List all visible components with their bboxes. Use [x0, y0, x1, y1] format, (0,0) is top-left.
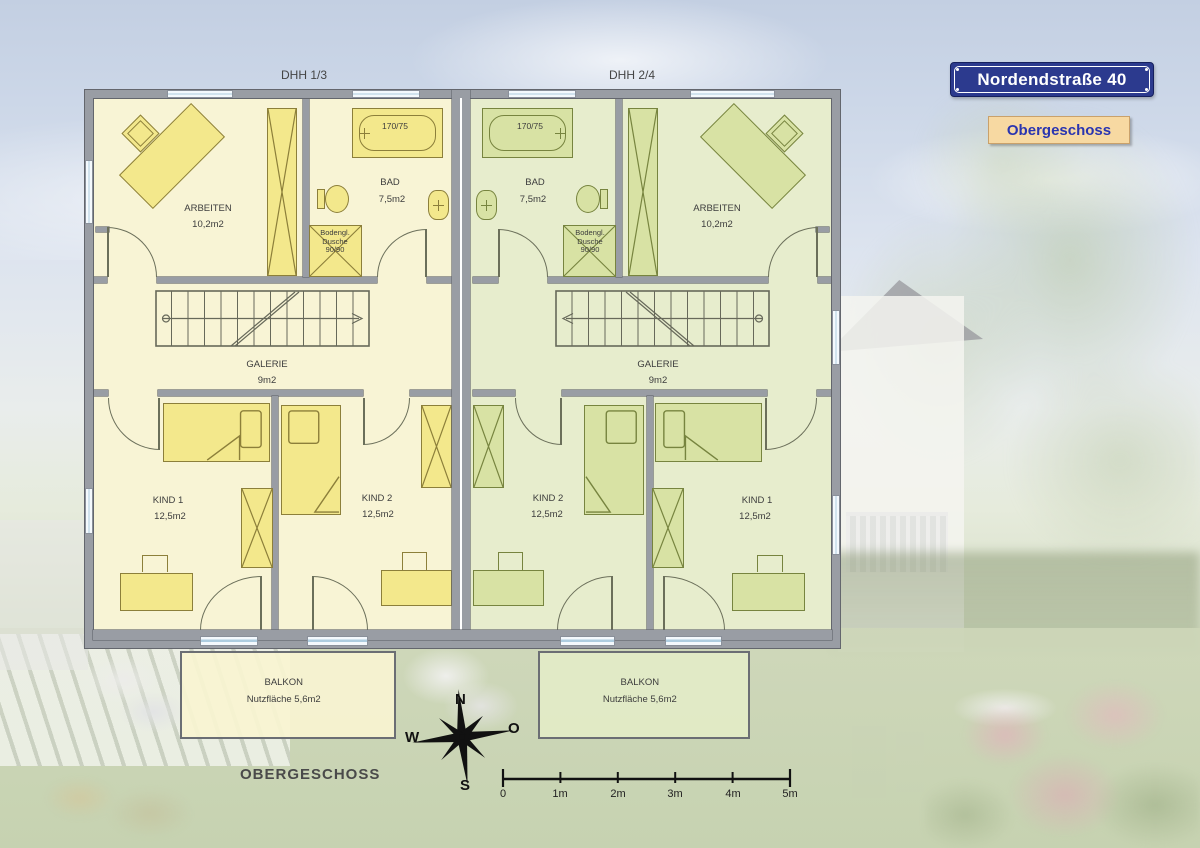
balcony-area-label: Nutzfläche 5,6m2 — [603, 694, 677, 705]
window — [690, 90, 775, 98]
balcony-right: BALKON Nutzfläche 5,6m2 — [538, 651, 750, 739]
balcony-label: BALKON — [621, 677, 660, 688]
street-sign-text: Nordendstraße 40 — [954, 66, 1150, 93]
party-wall — [452, 90, 470, 640]
background-house-balcony-rail — [846, 512, 948, 572]
balcony-area-label: Nutzfläche 5,6m2 — [247, 694, 321, 705]
compass-o-label: O — [508, 720, 520, 737]
screw-icon — [956, 88, 959, 91]
scale-tick-label: 5m — [782, 788, 797, 800]
window — [508, 90, 576, 98]
window — [832, 495, 840, 555]
screenshot-root: 170/75 Bodengl. Dusche 90/90 — [0, 0, 1200, 848]
compass-w-label: W — [405, 729, 419, 746]
scale-tick-label: 1m — [552, 788, 567, 800]
street-sign: Nordendstraße 40 — [950, 62, 1154, 97]
floor-plan: 170/75 Bodengl. Dusche 90/90 — [85, 90, 840, 648]
background-house-window — [896, 732, 924, 792]
window — [352, 90, 420, 98]
dhh-label-left: DHH 1/3 — [281, 68, 327, 82]
scale-bar: 0 1m 2m 3m 4m 5m — [500, 768, 794, 804]
background-flowers-left — [20, 758, 210, 848]
balcony-label: BALKON — [264, 677, 303, 688]
screw-icon — [1145, 68, 1148, 71]
floor-button[interactable]: Obergeschoss — [988, 116, 1130, 144]
balcony-left: BALKON Nutzfläche 5,6m2 — [180, 651, 396, 739]
window — [85, 488, 93, 534]
scale-tick-label: 2m — [610, 788, 625, 800]
window — [85, 160, 93, 224]
floor-title: OBERGESCHOSS — [240, 766, 380, 783]
window — [832, 310, 840, 365]
balcony-door-threshold — [560, 636, 615, 646]
balcony-door-threshold — [665, 636, 722, 646]
background-lounge-chairs-right — [935, 678, 1085, 742]
scale-tick-label: 4m — [725, 788, 740, 800]
scale-tick-label: 0 — [500, 788, 506, 800]
background-house — [838, 296, 964, 652]
background-fence-left — [0, 520, 88, 670]
compass-n-label: N — [455, 691, 466, 708]
balcony-door-threshold — [200, 636, 258, 646]
scale-tick-label: 3m — [667, 788, 682, 800]
screw-icon — [1145, 88, 1148, 91]
screw-icon — [956, 68, 959, 71]
background-hedge — [828, 552, 1200, 652]
window — [167, 90, 233, 98]
dhh-label-right: DHH 2/4 — [609, 68, 655, 82]
balcony-door-threshold — [307, 636, 368, 646]
background-house-door — [852, 726, 886, 798]
background-flowers-right — [925, 655, 1200, 848]
background-house-roof — [828, 280, 983, 352]
compass-s-label: S — [460, 777, 470, 794]
